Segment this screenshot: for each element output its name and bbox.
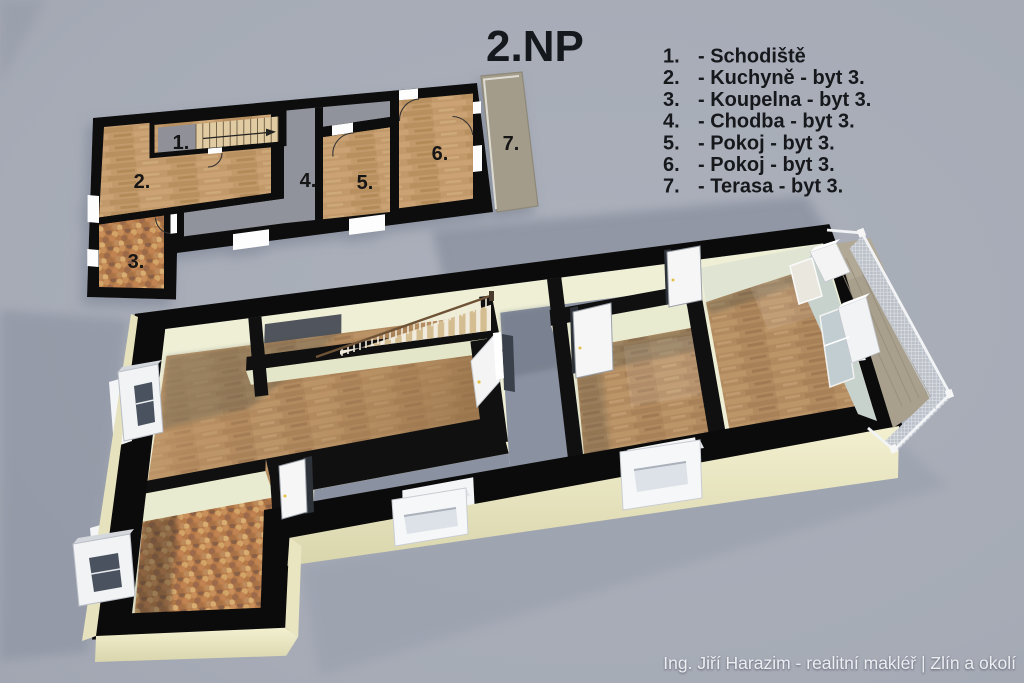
svg-text:Ing. Jiří Harazim - realitní m: Ing. Jiří Harazim - realitní makléř | Zl… [663,653,1016,673]
svg-text:2.: 2. [134,171,151,193]
svg-text:2.NP: 2.NP [486,22,584,71]
svg-text:3.: 3. [128,251,145,273]
svg-text:- Terasa - byt 3.: - Terasa - byt 3. [698,176,843,198]
svg-text:- Schodiště: - Schodiště [698,46,806,68]
svg-text:- Koupelna - byt 3.: - Koupelna - byt 3. [698,89,871,111]
svg-text:- Kuchyně - byt 3.: - Kuchyně - byt 3. [698,67,865,89]
svg-text:1.: 1. [663,46,680,68]
svg-text:7.: 7. [663,176,680,198]
svg-text:- Pokoj - byt 3.: - Pokoj - byt 3. [698,132,835,154]
svg-text:7.: 7. [503,133,520,155]
svg-text:- Chodba - byt 3.: - Chodba - byt 3. [698,111,855,133]
svg-text:5.: 5. [357,172,374,194]
svg-text:3.: 3. [663,89,680,111]
svg-text:4.: 4. [663,111,680,133]
svg-text:6.: 6. [432,143,449,165]
svg-text:5.: 5. [663,132,680,154]
svg-text:2.: 2. [663,67,680,89]
svg-text:6.: 6. [663,154,680,176]
svg-text:1.: 1. [173,132,190,154]
svg-text:4.: 4. [300,170,317,192]
svg-text:- Pokoj - byt 3.: - Pokoj - byt 3. [698,154,835,176]
